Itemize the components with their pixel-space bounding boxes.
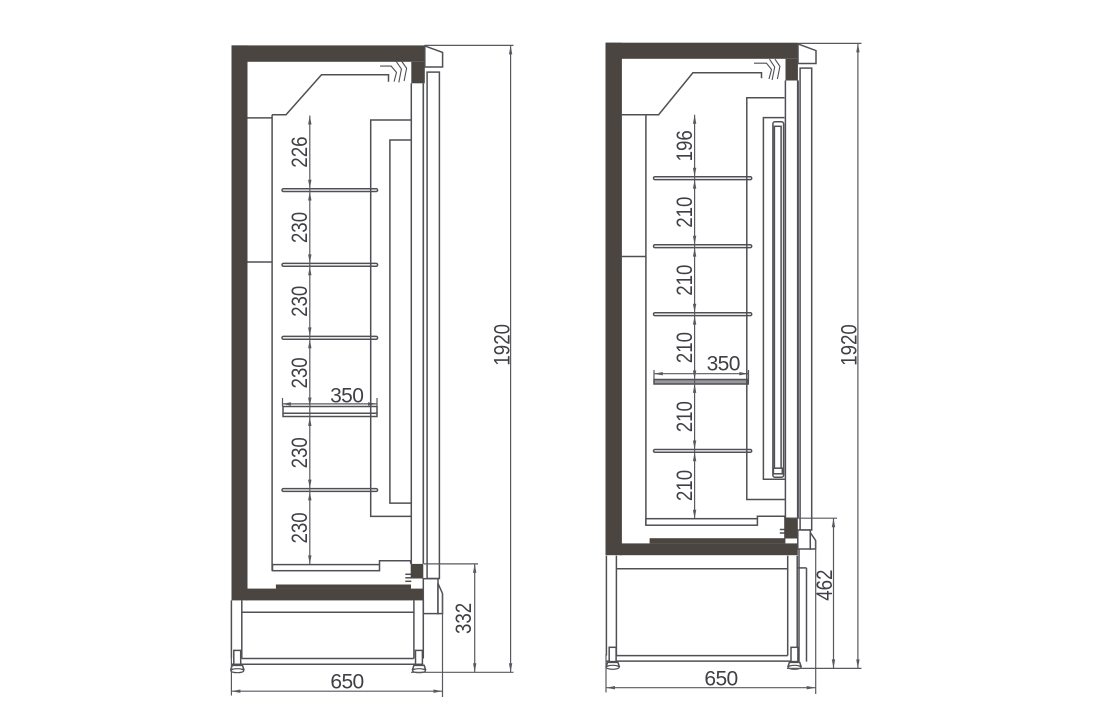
svg-text:196: 196	[673, 130, 697, 161]
svg-text:230: 230	[289, 512, 313, 543]
svg-text:210: 210	[673, 265, 697, 296]
svg-text:230: 230	[289, 212, 313, 243]
svg-text:210: 210	[673, 401, 697, 432]
svg-text:350: 350	[330, 385, 363, 408]
svg-text:226: 226	[289, 137, 313, 168]
svg-text:332: 332	[453, 603, 477, 634]
svg-text:650: 650	[330, 670, 363, 693]
svg-text:210: 210	[673, 332, 697, 363]
svg-text:650: 650	[704, 668, 737, 691]
svg-text:1920: 1920	[491, 324, 515, 366]
svg-text:210: 210	[673, 197, 697, 228]
svg-text:230: 230	[289, 286, 313, 317]
svg-text:1920: 1920	[838, 324, 862, 366]
svg-text:210: 210	[673, 470, 697, 501]
svg-text:462: 462	[814, 570, 838, 601]
svg-text:230: 230	[289, 437, 313, 468]
svg-text:350: 350	[707, 353, 740, 376]
svg-text:230: 230	[289, 357, 313, 388]
